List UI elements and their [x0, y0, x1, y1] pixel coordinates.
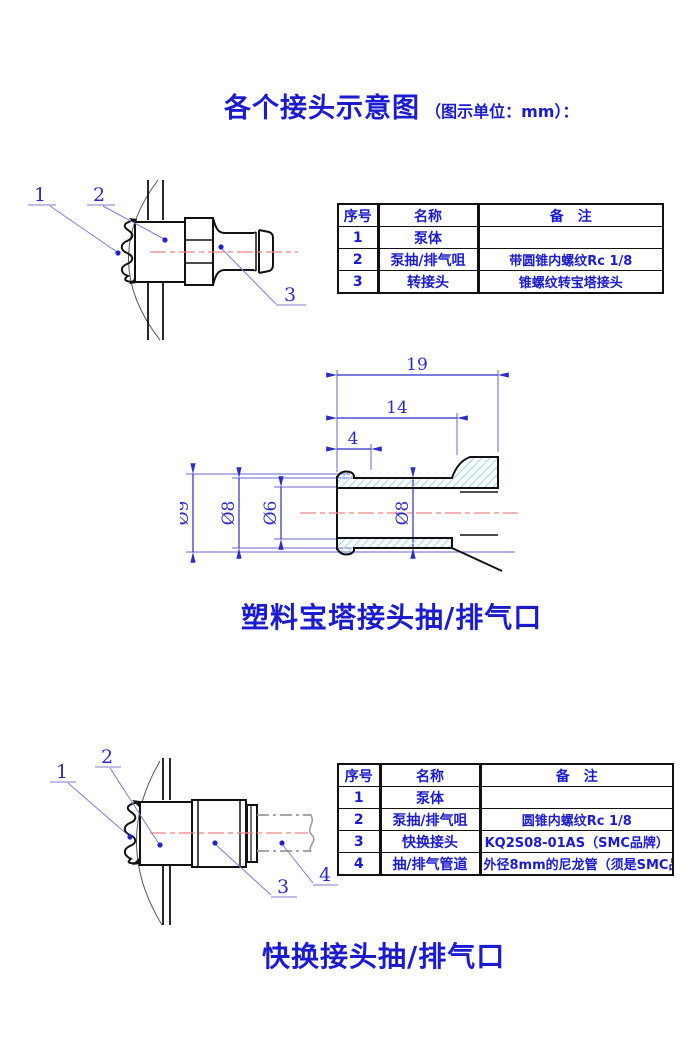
- balloon-2: 2: [93, 184, 105, 206]
- section-upper-wall: [337, 457, 498, 488]
- drawing-sheet: { "title": { "main": "各个接头示意图", "sub": "…: [0, 0, 700, 1063]
- page-title-main: 各个接头示意图: [224, 93, 420, 124]
- col-header-index: 序号: [338, 764, 380, 787]
- section-right-features: [452, 492, 502, 571]
- col-header-remark: 备 注: [480, 764, 673, 787]
- col-header-remark: 备 注: [478, 204, 663, 227]
- table-row: 1 泵体: [338, 227, 663, 249]
- col-header-name: 名称: [378, 204, 478, 227]
- pagoda-parts-table: 序号 名称 备 注 1 泵体 2 泵抽/排气咀 带圆锥内螺纹Rc 1/8 3 转…: [337, 203, 664, 294]
- dim-barb-length: 4: [348, 429, 359, 449]
- cell-name: 泵抽/排气咀: [380, 809, 480, 831]
- page-title-unit-note: （图示单位：mm）：: [425, 102, 578, 121]
- cell-remark: KQ2S08-01AS（SMC品牌）: [480, 831, 673, 853]
- table-row: 1 泵体: [338, 787, 673, 809]
- dim-outer-diameter: Ø9: [180, 501, 193, 526]
- dim-total-length: 19: [406, 355, 428, 375]
- col-header-index: 序号: [338, 204, 378, 227]
- cell-remark: 外径8mm的尼龙管（须是SMC品牌）: [480, 853, 673, 876]
- page-title: 各个接头示意图 （图示单位：mm）：: [224, 86, 578, 125]
- balloon-3: 3: [277, 876, 289, 898]
- table-header-row: 序号 名称 备 注: [338, 204, 663, 227]
- dim-shaft-length: 14: [386, 398, 408, 418]
- cell-index: 1: [338, 787, 380, 809]
- balloon-1: 1: [34, 184, 46, 206]
- pagoda-section-drawing: 19 14 4 Ø9 Ø8 Ø6 Ø8: [180, 352, 525, 582]
- balloon-1: 1: [56, 761, 68, 783]
- table-row: 3 快换接头 KQ2S08-01AS（SMC品牌）: [338, 831, 673, 853]
- dim-bore-diameter: Ø6: [261, 501, 281, 526]
- cell-index: 3: [338, 271, 378, 294]
- table-row: 2 泵抽/排气咀 带圆锥内螺纹Rc 1/8: [338, 249, 663, 271]
- cell-index: 2: [338, 249, 378, 271]
- table-row: 4 抽/排气管道 外径8mm的尼龙管（须是SMC品牌）: [338, 853, 673, 876]
- balloon-3: 3: [284, 284, 296, 306]
- cell-index: 1: [338, 227, 378, 249]
- cell-remark: [480, 787, 673, 809]
- balloon-2: 2: [101, 746, 113, 768]
- dim-hole-diameter: Ø8: [393, 501, 413, 526]
- cell-name: 转接头: [378, 271, 478, 294]
- cell-remark: 锥螺纹转宝塔接头: [478, 271, 663, 294]
- thread-lip-bottom: [132, 858, 140, 865]
- cell-remark: 带圆锥内螺纹Rc 1/8: [478, 249, 663, 271]
- cell-name: 泵抽/排气咀: [378, 249, 478, 271]
- cell-index: 3: [338, 831, 380, 853]
- caption-pagoda-port: 塑料宝塔接头抽/排气口: [241, 596, 542, 636]
- pagoda-assembly-drawing: 1 2 3: [20, 168, 330, 353]
- quick-assembly-drawing: 1 2 3 4: [20, 735, 350, 935]
- quick-parts-table: 序号 名称 备 注 1 泵体 2 泵抽/排气咀 圆锥内螺纹Rc 1/8 3 快换…: [337, 763, 674, 876]
- caption-quick-port: 快换接头抽/排气口: [262, 935, 505, 975]
- cell-name: 泵体: [380, 787, 480, 809]
- balloon-4: 4: [319, 864, 331, 886]
- col-header-name: 名称: [380, 764, 480, 787]
- cell-name: 快换接头: [380, 831, 480, 853]
- cell-remark: 圆锥内螺纹Rc 1/8: [480, 809, 673, 831]
- table-row: 2 泵抽/排气咀 圆锥内螺纹Rc 1/8: [338, 809, 673, 831]
- cell-index: 4: [338, 853, 380, 876]
- cell-name: 泵体: [378, 227, 478, 249]
- cell-name: 抽/排气管道: [380, 853, 480, 876]
- cell-remark: [478, 227, 663, 249]
- cell-index: 2: [338, 809, 380, 831]
- table-header-row: 序号 名称 备 注: [338, 764, 673, 787]
- table-row: 3 转接头 锥螺纹转宝塔接头: [338, 271, 663, 294]
- dim-shaft-diameter: Ø8: [219, 501, 239, 526]
